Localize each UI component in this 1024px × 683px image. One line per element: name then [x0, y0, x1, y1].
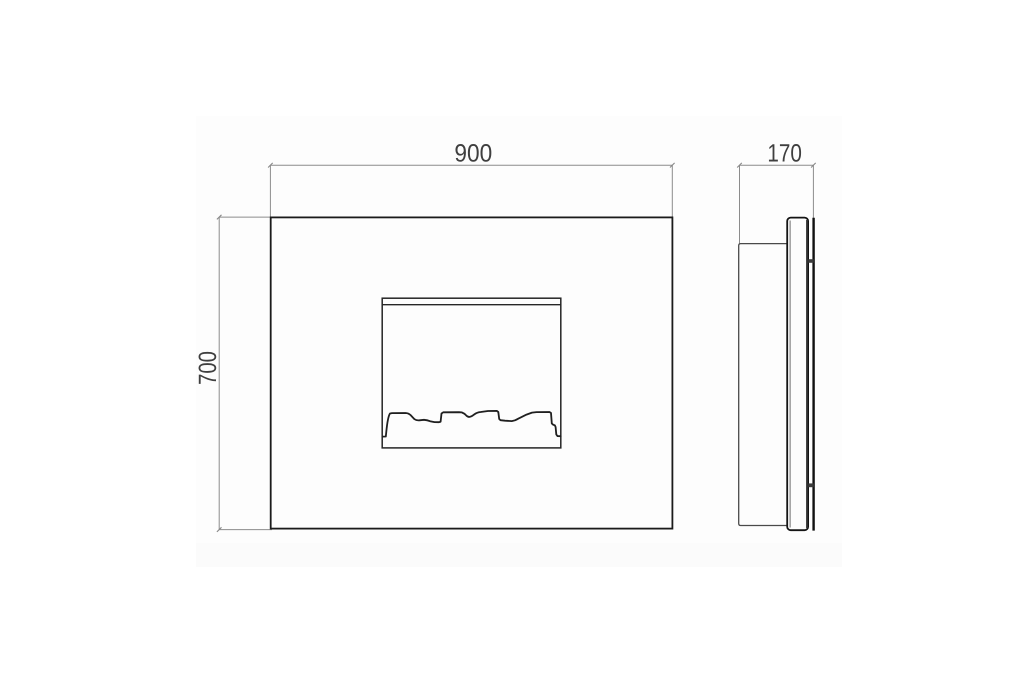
svg-text:900: 900	[454, 140, 492, 168]
svg-text:700: 700	[194, 351, 222, 385]
svg-text:170: 170	[767, 140, 802, 168]
